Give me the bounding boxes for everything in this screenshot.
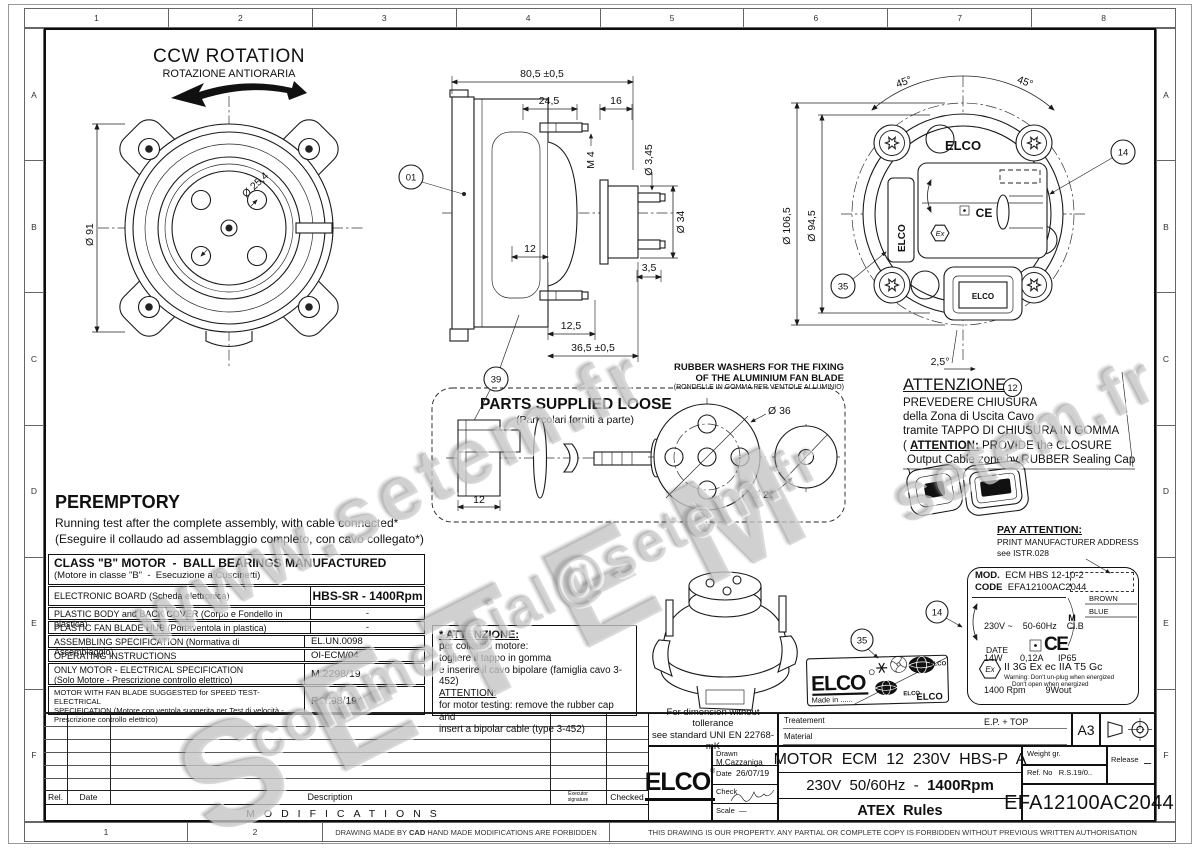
class-b-motor-table: CLASS "B" MOTOR - BALL BEARINGS MANUFACT… [48, 554, 425, 715]
attention-testing-line6: insert a bipolar cable (type 3-452) [439, 724, 630, 736]
grid-row-label: A [1157, 29, 1175, 161]
mods-col-checked: Checked [606, 790, 648, 804]
drawing-title-line3: ATEX Rules [779, 799, 1021, 823]
cad-note-pre: DRAWING MADE BY [335, 828, 409, 837]
row-value: M.2298/19 [304, 664, 424, 684]
peremptory-line1: Running test after the complete assembly… [55, 516, 424, 530]
table-row: OPERATING INSTRUCTIONS OI-ECM/04 [48, 649, 425, 662]
attention-closure-block: ATTENZIONE: PREVEDERE CHIUSURA della Zon… [903, 376, 1141, 481]
rubber-washers-note: RUBBER WASHERS FOR THE FIXING OF THE ALU… [628, 363, 844, 392]
mods-col-description: Description [110, 790, 550, 804]
table-row: ASSEMBLING SPECIFICATION (Normativa di A… [48, 635, 425, 648]
row-value: F.2298/19A [304, 687, 424, 714]
grid-band-right: A B C D E F [1156, 28, 1176, 822]
grid-col-label: 6 [744, 9, 888, 27]
table-row: ONLY MOTOR - ELECTRICAL SPECIFICATION(So… [48, 663, 425, 685]
pay-attention-block: PAY ATTENTION: PRINT MANUFACTURER ADDRES… [997, 524, 1139, 558]
drawing-title-line1: MOTOR ECM 12 230V HBS-P A [779, 747, 1021, 773]
release-value: – [1144, 756, 1151, 771]
ref-row: Ref. No R.S.19/0.. [1022, 765, 1107, 784]
rubber-washers-note-line3: (RONDELLE IN GOMMA PER VENTOLE ALLUMINIO… [628, 384, 844, 392]
attention-closure-line4: ( ATTENTION: PROVIDE the CLOSURE [903, 439, 1141, 453]
grid-band-left: A B C D E F [24, 28, 44, 822]
grid-row-label: E [25, 558, 43, 690]
balloon-12: 12 [1003, 378, 1022, 397]
grid-band-top: 1 2 3 4 5 6 7 8 [24, 8, 1176, 28]
row-value: OI-ECM/04 [304, 650, 424, 661]
attention-testing-line1: per collaudo motore: [439, 641, 630, 653]
attention-closure-line3: tramite TAPPO DI CHIUSURA IN GOMMA [903, 424, 1141, 438]
peremptory-line2: (Eseguire il collaudo ad assemblaggio co… [55, 532, 424, 546]
grid-row-label: B [1157, 161, 1175, 293]
row-label: ONLY MOTOR - ELECTRICAL SPECIFICATION(So… [49, 664, 304, 684]
row-label: PLASTIC BODY and BACK COVER (Corpo e Fon… [49, 608, 310, 619]
spec-line-4: E.P. + TOP [984, 717, 1084, 728]
footer-band: 1 2 DRAWING MADE BY CAD HAND MADE MODIFI… [24, 822, 1176, 842]
tolerance-note-box: For dimension without tollerance see sta… [648, 713, 778, 746]
mods-col-executor: Executorsignature [550, 790, 606, 804]
row-value: EL.UN.0098 [304, 636, 424, 647]
grid-col-label: 1 [25, 9, 169, 27]
row-label: OPERATING INSTRUCTIONS [49, 650, 304, 661]
footer-cad-note: DRAWING MADE BY CAD HAND MADE MODIFICATI… [323, 823, 610, 841]
grid-row-label: E [1157, 558, 1175, 690]
footer-col-1: 1 [25, 823, 188, 841]
mods-col-rel: Rel. [44, 790, 67, 804]
projection-symbol-box [1100, 713, 1156, 746]
pay-attention-line1: PRINT MANUFACTURER ADDRESS [997, 537, 1139, 548]
check-row: Check [713, 785, 777, 804]
spec-line-2: 14W 0,12A IP65 [984, 653, 1084, 664]
drawing-title-col: MOTOR ECM 12 230V HBS-P A 230V 50/60Hz -… [778, 746, 1022, 822]
spec-line-1: 230V ~ 50-60Hz Cl.B [984, 621, 1084, 632]
row-label: ELECTRONIC BOARD (Scheda elettronica) [49, 587, 310, 605]
attention-testing-box: * ATTENZIONE: per collaudo motore: togli… [432, 625, 637, 716]
attention-testing-line4: ATTENTION: [439, 688, 630, 700]
tolerance-line1: For dimension without tollerance [649, 707, 777, 730]
weight-row: Weight gr. [1022, 746, 1107, 765]
class-table-title: CLASS "B" MOTOR - BALL BEARINGS MANUFACT… [54, 556, 419, 570]
grid-col-label: 4 [457, 9, 601, 27]
ccw-rotation-subtitle: ROTAZIONE ANTIORARIA [118, 68, 340, 81]
table-row: PLASTIC BODY and BACK COVER (Corpo e Fon… [48, 607, 425, 620]
scale-row: Scale — [713, 804, 777, 823]
grid-col-label: 5 [601, 9, 745, 27]
attention-testing-line5: for motor testing: remove the rubber cap… [439, 700, 630, 724]
company-logo-box: ELCO® [648, 746, 712, 822]
cad-note-post: HAND MADE MODIFICATIONS ARE FORBIDDEN [425, 828, 597, 837]
drawing-sheet: 1 2 3 4 5 6 7 8 A B C D E F A B C D E F … [0, 0, 1200, 848]
attention-testing-line2: togliere il tappo in gomma [439, 653, 630, 665]
grid-row-label: C [1157, 293, 1175, 425]
material-label: Material [784, 732, 812, 741]
grid-row-label: F [25, 690, 43, 821]
drawing-code-box: EFA12100AC2044 [1022, 784, 1156, 822]
release-box: Release – [1107, 746, 1156, 784]
rubber-washers-note-line2: OF THE ALUMINIUM FAN BLADE [628, 374, 844, 385]
attention-closure-line2: della Zona di Uscita Cavo [903, 410, 1141, 424]
pay-attention-title: PAY ATTENTION: [997, 524, 1139, 537]
grid-row-label: C [25, 293, 43, 425]
row-value: - [310, 608, 424, 619]
treatment-label: Treatement [784, 716, 825, 725]
grid-col-label: 3 [313, 9, 457, 27]
table-row: MOTOR WITH FAN BLADE SUGGESTED for SPEED… [48, 686, 425, 715]
class-table-header: CLASS "B" MOTOR - BALL BEARINGS MANUFACT… [48, 554, 425, 585]
row-label: ASSEMBLING SPECIFICATION (Normativa di A… [49, 636, 304, 647]
date-row: Date 26/07/19 [713, 766, 777, 785]
table-row: ELECTRONIC BOARD (Scheda elettronica) HB… [48, 586, 425, 606]
parts-box-subtitle: (Particolari forniti a parte) [480, 414, 670, 426]
rating-plate-specs: 230V ~ 50-60Hz Cl.B 14W 0,12A IP65 1400 … [984, 600, 1084, 748]
attention-closure-line1: PREVEDERE CHIUSURA [903, 396, 1141, 410]
footer-col-2: 2 [188, 823, 323, 841]
footer-property-note: THIS DRAWING IS OUR PROPERTY. ANY PARTIA… [610, 823, 1175, 841]
attention-testing-title: * ATTENZIONE: [439, 629, 630, 641]
grid-col-label: 8 [1032, 9, 1175, 27]
row-label: PLASTIC FAN BLADE HUB (Portaventola in p… [49, 622, 310, 633]
company-logo: ELCO [645, 768, 710, 796]
modifications-title: MODIFICATIONS [44, 805, 648, 822]
class-table-subtitle: (Motore in classe "B" - Esecuzione a Cus… [54, 570, 419, 581]
drawing-info-col: Drawn M.Cazzaniga Date 26/07/19 Check Sc… [712, 746, 778, 822]
row-label: MOTOR WITH FAN BLADE SUGGESTED for SPEED… [49, 687, 304, 714]
peremptory-block: PEREMPTORY Running test after the comple… [55, 492, 424, 546]
cad-note-bold: CAD [409, 828, 425, 837]
attention-testing-line3: e inserire il cavo bipolare (famiglia ca… [439, 665, 630, 689]
mods-col-date: Date [67, 790, 110, 804]
grid-col-label: 2 [169, 9, 313, 27]
pay-attention-line2: see ISTR.028 [997, 548, 1139, 559]
row-value: HBS-SR - 1400Rpm [310, 587, 424, 605]
grid-row-label: D [1157, 426, 1175, 558]
grid-row-label: A [25, 29, 43, 161]
drawing-title-line2: 230V 50/60Hz - 1400Rpm [779, 773, 1021, 799]
row-value: - [310, 622, 424, 633]
attention-closure-title: ATTENZIONE: [903, 376, 1011, 395]
grid-col-label: 7 [888, 9, 1032, 27]
grid-row-label: B [25, 161, 43, 293]
spec-line-3: 1400 Rpm 9Wout [984, 685, 1084, 696]
grid-row-label: D [25, 426, 43, 558]
attention-closure-line5: Output Cable zone by RUBBER Sealing Cap … [903, 453, 1141, 481]
peremptory-title: PEREMPTORY [55, 492, 424, 513]
release-label: Release [1111, 756, 1139, 765]
drawn-row: Drawn M.Cazzaniga [713, 747, 777, 766]
table-row: PLASTIC FAN BLADE HUB (Portaventola in p… [48, 621, 425, 634]
ccw-rotation-title: CCW ROTATION [118, 46, 340, 68]
parts-box-title: PARTS SUPPLIED LOOSE [480, 396, 670, 414]
